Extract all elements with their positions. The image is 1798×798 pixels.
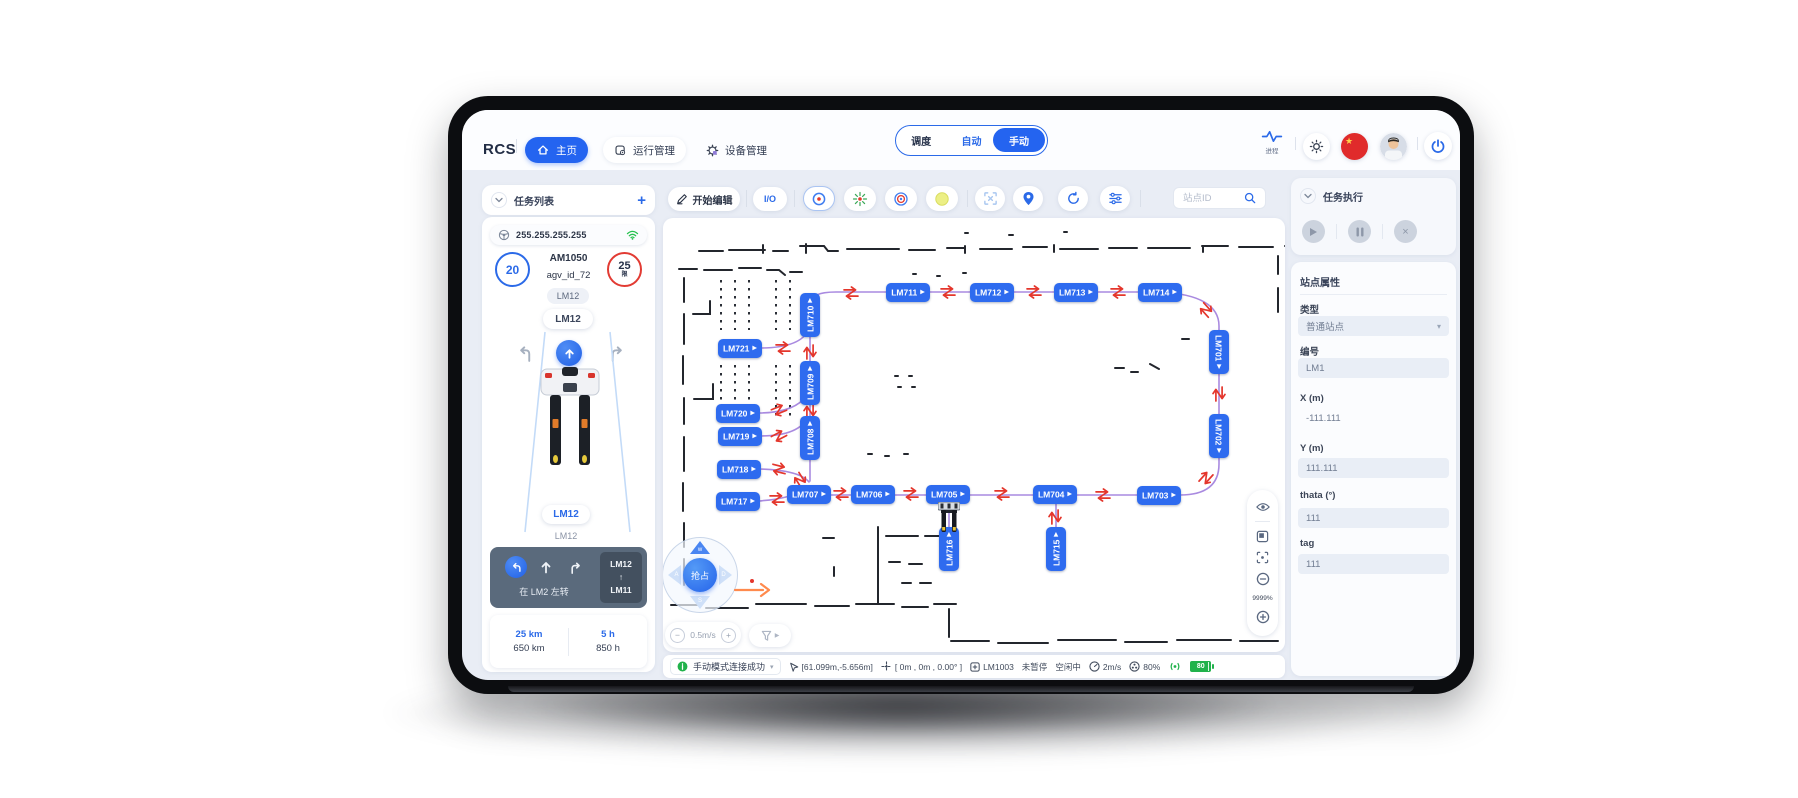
station-pill-label: LM12 bbox=[555, 314, 581, 325]
app-logo: RCS bbox=[483, 141, 516, 158]
station-layer-button[interactable] bbox=[803, 186, 835, 211]
gauge-icon bbox=[1089, 661, 1100, 672]
map-node-LM710[interactable]: LM710▶ bbox=[800, 293, 820, 337]
action-turn-left-button[interactable] bbox=[505, 556, 527, 578]
task-execution-header: 任务执行 bbox=[1300, 188, 1363, 204]
map-view-controls: 9999% bbox=[1247, 490, 1278, 636]
current-station-sub: LM12 bbox=[482, 531, 650, 541]
map-node-LM703[interactable]: LM703▶ bbox=[1137, 486, 1181, 505]
divider bbox=[794, 190, 795, 207]
map-node-LM721[interactable]: LM721▶ bbox=[718, 339, 762, 358]
y-value: 111.111 bbox=[1306, 463, 1338, 474]
zoom-out-icon[interactable] bbox=[1256, 572, 1270, 586]
map-node-LM713[interactable]: LM713▶ bbox=[1054, 283, 1098, 302]
station-icon bbox=[811, 191, 827, 207]
status-bar: 手动模式连接成功 ▾ [61.099m,-5.656m] [ 0m , 0m ,… bbox=[663, 655, 1285, 678]
station-tag-pill: LM12 bbox=[547, 288, 589, 304]
joystick-up-key: w bbox=[698, 547, 702, 553]
location-pin-icon bbox=[1022, 191, 1035, 206]
signal-icon bbox=[1168, 661, 1182, 672]
id-label: 编号 bbox=[1300, 344, 1319, 358]
map-node-LM701[interactable]: LM701▶ bbox=[1209, 330, 1229, 374]
id-value: LM1 bbox=[1306, 363, 1324, 374]
map-node-LM704[interactable]: LM704▶ bbox=[1033, 485, 1077, 504]
top-bar: RCS 主页 运行管理 设备管理 调度 自动 bbox=[462, 110, 1460, 170]
target-icon bbox=[893, 191, 909, 207]
orientation-arrow bbox=[731, 576, 777, 602]
start-edit-button[interactable]: 开始编辑 bbox=[668, 187, 740, 211]
manual-control-panel: 在 LM2 左转 LM12 ↑ LM11 bbox=[490, 547, 647, 608]
area-layer-button[interactable] bbox=[926, 186, 958, 211]
avatar-image bbox=[1380, 133, 1407, 160]
io-label: I/O bbox=[764, 194, 776, 204]
mode-toggle[interactable]: 调度 自动 手动 bbox=[895, 125, 1048, 156]
image-layer-icon[interactable] bbox=[1256, 530, 1269, 543]
focus-icon[interactable] bbox=[1256, 551, 1269, 564]
battery-indicator: 80 bbox=[1190, 661, 1211, 672]
device-icon bbox=[706, 144, 719, 157]
chevron-down-icon: ▾ bbox=[770, 663, 774, 671]
limit-sub: 限 bbox=[621, 272, 627, 278]
divider bbox=[1255, 521, 1270, 522]
operation-icon bbox=[614, 144, 627, 157]
info-icon bbox=[677, 661, 688, 672]
status-speed: 2m/s bbox=[1089, 661, 1121, 672]
speed-plus-button[interactable]: + bbox=[721, 628, 736, 643]
action-turn-right-button[interactable] bbox=[564, 556, 586, 578]
station-tag: LM12 bbox=[557, 291, 580, 301]
map-node-LM702[interactable]: LM702▶ bbox=[1209, 414, 1229, 458]
odometer-total: 650 km bbox=[513, 643, 544, 654]
limit-badge: 25 限 bbox=[607, 252, 642, 287]
connection-status: 手动模式连接成功 bbox=[693, 660, 765, 673]
x-value[interactable]: -111.111 bbox=[1306, 413, 1341, 424]
divider bbox=[516, 139, 517, 153]
move-icon bbox=[881, 661, 892, 672]
mode-manual[interactable]: 手动 bbox=[993, 128, 1045, 152]
map-node-LM714[interactable]: LM714▶ bbox=[1138, 283, 1182, 302]
y-label: Y (m) bbox=[1300, 443, 1324, 454]
map-node-LM717[interactable]: LM717▶ bbox=[716, 492, 760, 511]
agv-ip-row[interactable]: 255.255.255.255 bbox=[490, 225, 647, 245]
joystick-seize-button[interactable]: 抢占 bbox=[683, 558, 717, 592]
tag-input[interactable]: 111 bbox=[1298, 554, 1449, 574]
map-node-LM715[interactable]: LM715▶ bbox=[1046, 527, 1066, 571]
agv-ip: 255.255.255.255 bbox=[516, 230, 620, 240]
user-avatar[interactable] bbox=[1380, 133, 1407, 160]
brightness-button[interactable] bbox=[1303, 133, 1330, 160]
task-buttons: × bbox=[1302, 220, 1417, 243]
joystick-left-key: A bbox=[674, 572, 678, 578]
tune-icon bbox=[1108, 192, 1123, 205]
map-node-LM712[interactable]: LM712▶ bbox=[970, 283, 1014, 302]
station-properties-title: 站点属性 bbox=[1300, 274, 1340, 289]
map-node-LM707[interactable]: LM707▶ bbox=[787, 485, 831, 504]
divider bbox=[967, 190, 968, 207]
speed-value: 0.5m/s bbox=[690, 630, 716, 640]
position-value: [61.099m,-5.656m] bbox=[802, 662, 873, 672]
joystick-right-key: D bbox=[721, 572, 725, 578]
turn-right-icon bbox=[567, 559, 584, 576]
agv-id: agv_id_72 bbox=[530, 270, 607, 281]
play-icon bbox=[1309, 227, 1318, 237]
speed-value: 2m/s bbox=[1103, 662, 1121, 672]
close-icon: × bbox=[1402, 226, 1408, 238]
nav-device-label: 设备管理 bbox=[725, 143, 767, 158]
divider bbox=[1295, 137, 1296, 150]
zoom-in-icon[interactable] bbox=[1256, 610, 1270, 624]
type-label: 类型 bbox=[1300, 302, 1319, 316]
pencil-icon bbox=[676, 193, 688, 205]
x-label: X (m) bbox=[1300, 393, 1324, 404]
mode-dispatch[interactable]: 调度 bbox=[896, 133, 946, 148]
arrow-up-icon bbox=[538, 559, 554, 575]
app-window: RCS 主页 运行管理 设备管理 调度 自动 bbox=[462, 110, 1460, 680]
cpu-value: 80% bbox=[1143, 662, 1160, 672]
horn-control[interactable]: ▶ bbox=[749, 624, 791, 647]
theta-label: thata (°) bbox=[1300, 490, 1335, 501]
pulse-icon bbox=[1261, 129, 1283, 144]
action-forward-button[interactable] bbox=[535, 556, 557, 578]
funnel-icon bbox=[761, 630, 772, 642]
scan-frame-button[interactable] bbox=[975, 186, 1005, 211]
task-list-header: 任务列表 + bbox=[482, 185, 655, 215]
home-icon bbox=[536, 143, 550, 157]
nav-operation[interactable]: 运行管理 bbox=[603, 137, 686, 163]
cancel-button[interactable]: × bbox=[1394, 220, 1417, 243]
nav-home-label: 主页 bbox=[556, 143, 577, 158]
refresh-button[interactable] bbox=[1058, 186, 1088, 211]
power-button[interactable] bbox=[1424, 132, 1452, 160]
yellow-circle-icon bbox=[934, 191, 950, 207]
play-small-icon: ▶ bbox=[775, 632, 780, 639]
map-node-LM708[interactable]: LM708▶ bbox=[800, 416, 820, 460]
speed-minus-button[interactable]: − bbox=[670, 628, 685, 643]
station-properties-card: 站点属性 类型 普通站点 ▾ 编号 LM1 X (m) -111.111 Y (… bbox=[1291, 262, 1456, 676]
joystick-down-key: S bbox=[698, 598, 702, 604]
station-value: LM1003 bbox=[983, 662, 1014, 672]
status-pause: 未暂停 bbox=[1022, 661, 1048, 673]
return-left-icon bbox=[509, 560, 523, 574]
sun-icon bbox=[1309, 139, 1324, 154]
idle-value: 空闲中 bbox=[1055, 661, 1081, 673]
forklift-image bbox=[540, 367, 600, 477]
agv-model: AM1050 bbox=[530, 253, 607, 264]
station-pill: LM12 bbox=[543, 309, 593, 329]
eye-icon[interactable] bbox=[1256, 502, 1270, 512]
pause-value: 未暂停 bbox=[1022, 661, 1048, 673]
pin-button[interactable] bbox=[1013, 186, 1043, 211]
status-idle: 空闲中 bbox=[1055, 661, 1081, 673]
page: RCS 主页 运行管理 设备管理 调度 自动 bbox=[0, 0, 1798, 798]
divider bbox=[1140, 190, 1141, 207]
speed-control: − 0.5m/s + bbox=[665, 622, 741, 648]
nav-home[interactable]: 主页 bbox=[525, 137, 588, 163]
odometer-today: 25 km bbox=[516, 629, 543, 640]
action-text: 在 LM2 左转 bbox=[490, 585, 598, 598]
pause-button[interactable] bbox=[1348, 220, 1371, 243]
nav-device[interactable]: 设备管理 bbox=[695, 137, 778, 163]
nav-operation-label: 运行管理 bbox=[633, 143, 675, 158]
filter-button[interactable] bbox=[1100, 186, 1130, 211]
status-pose: [ 0m , 0m , 0.00° ] bbox=[881, 661, 962, 672]
battery-percent: 80 bbox=[1197, 663, 1205, 670]
language-flag-button[interactable]: ★ bbox=[1341, 133, 1368, 160]
task-list-title: 任务列表 bbox=[514, 193, 630, 208]
battery-count: 20 bbox=[506, 263, 519, 277]
status-station: LM1003 bbox=[970, 662, 1014, 672]
pause-icon bbox=[1356, 227, 1364, 237]
status-position: [61.099m,-5.656m] bbox=[789, 662, 873, 672]
route-to: LM11 bbox=[610, 584, 631, 597]
battery-count-badge: 20 bbox=[495, 252, 530, 287]
chevron-down-icon: ▾ bbox=[1437, 322, 1441, 331]
collapse-button[interactable] bbox=[1300, 188, 1316, 204]
target-layer-button[interactable] bbox=[885, 186, 917, 211]
wifi-icon bbox=[626, 230, 639, 240]
agv-names: AM1050 agv_id_72 bbox=[530, 253, 607, 281]
device-frame: RCS 主页 运行管理 设备管理 调度 自动 bbox=[448, 96, 1474, 694]
tag-label: tag bbox=[1300, 538, 1314, 549]
task-execution-card: 任务执行 × bbox=[1291, 178, 1456, 255]
map-canvas[interactable]: LM711▶LM712▶LM713▶LM714▶LM710▶LM721▶LM70… bbox=[663, 218, 1285, 652]
route-box: LM12 ↑ LM11 bbox=[600, 552, 642, 603]
io-button[interactable]: I/O bbox=[753, 187, 787, 211]
map-node-LM709[interactable]: LM709▶ bbox=[800, 361, 820, 405]
limit-count: 25 bbox=[618, 261, 630, 272]
map-node-LM719[interactable]: LM719▶ bbox=[718, 427, 762, 446]
hours-today: 5 h bbox=[601, 629, 615, 640]
agv-stats: 25 km 650 km 5 h 850 h bbox=[490, 615, 647, 668]
starburst-icon bbox=[852, 191, 868, 207]
divider bbox=[1336, 224, 1337, 239]
type-select[interactable]: 普通站点 ▾ bbox=[1298, 316, 1449, 336]
theta-input[interactable]: 111 bbox=[1298, 508, 1449, 528]
connection-status-select[interactable]: 手动模式连接成功 ▾ bbox=[670, 658, 781, 675]
steering-wheel-icon bbox=[498, 229, 510, 241]
map-node-LM718[interactable]: LM718▶ bbox=[717, 460, 761, 479]
map-node-LM705[interactable]: LM705▶ bbox=[926, 485, 970, 504]
hours-stat: 5 h 850 h bbox=[569, 615, 647, 668]
collapse-button[interactable] bbox=[491, 192, 507, 208]
divider bbox=[1382, 224, 1383, 239]
process-button[interactable]: 进程 bbox=[1253, 129, 1291, 155]
start-edit-label: 开始编辑 bbox=[693, 192, 733, 207]
id-input[interactable]: LM1 bbox=[1298, 358, 1449, 378]
current-station-pill: LM12 bbox=[542, 505, 590, 524]
current-station: LM12 bbox=[553, 509, 579, 520]
play-button[interactable] bbox=[1302, 220, 1325, 243]
mode-auto[interactable]: 自动 bbox=[946, 133, 996, 148]
power-icon bbox=[1430, 138, 1446, 154]
fan-icon bbox=[1129, 661, 1140, 672]
plus-square-icon bbox=[970, 662, 980, 672]
agv-card: 255.255.255.255 20 AM1050 agv_id_72 25 限… bbox=[482, 217, 655, 672]
divider bbox=[746, 190, 747, 207]
search-icon[interactable] bbox=[1244, 192, 1256, 204]
station-search bbox=[1173, 187, 1266, 209]
hours-total: 850 h bbox=[596, 643, 620, 654]
pose-value: [ 0m , 0m , 0.00° ] bbox=[895, 662, 962, 672]
y-input[interactable]: 111.111 bbox=[1298, 458, 1449, 478]
map-node-LM706[interactable]: LM706▶ bbox=[851, 485, 895, 504]
odometer-stat: 25 km 650 km bbox=[490, 615, 568, 668]
scan-frame-icon bbox=[983, 191, 998, 206]
zoom-percent: 9999% bbox=[1252, 595, 1272, 602]
tag-value: 111 bbox=[1306, 559, 1320, 570]
type-value: 普通站点 bbox=[1306, 319, 1344, 333]
task-execution-title: 任务执行 bbox=[1323, 189, 1363, 204]
divider bbox=[1417, 137, 1418, 150]
process-label: 进程 bbox=[1266, 145, 1279, 155]
cursor-icon bbox=[789, 662, 799, 672]
flag-star-icon: ★ bbox=[1345, 136, 1353, 147]
robot-marker[interactable] bbox=[938, 502, 960, 536]
station-search-input[interactable] bbox=[1181, 192, 1239, 205]
theta-value: 111 bbox=[1306, 513, 1320, 524]
lidar-points-button[interactable] bbox=[844, 186, 876, 211]
seize-label: 抢占 bbox=[691, 569, 709, 582]
divider bbox=[1300, 294, 1447, 295]
map-node-LM720[interactable]: LM720▶ bbox=[716, 404, 760, 423]
map-node-LM711[interactable]: LM711▶ bbox=[886, 283, 930, 302]
add-task-button[interactable]: + bbox=[637, 193, 646, 208]
status-cpu: 80% bbox=[1129, 661, 1160, 672]
route-from: LM12 bbox=[610, 558, 632, 571]
refresh-icon bbox=[1066, 191, 1081, 206]
route-arrow: ↑ bbox=[619, 571, 623, 584]
